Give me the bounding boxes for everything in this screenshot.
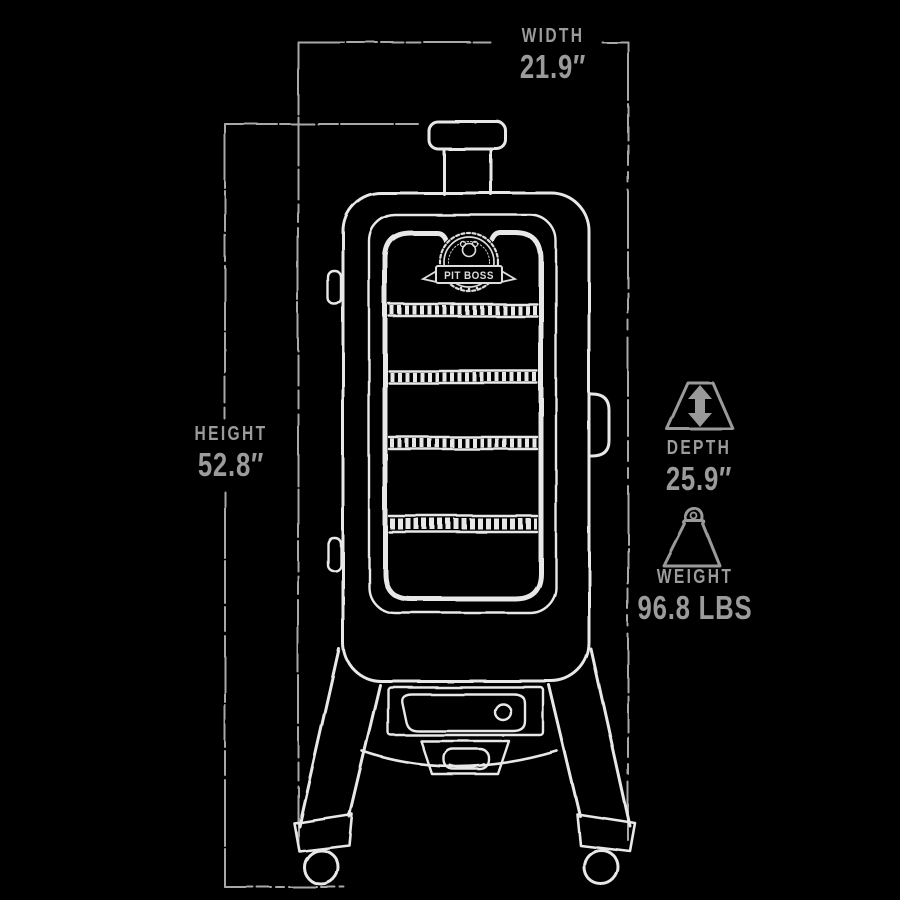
width-label: WIDTH (520, 26, 586, 46)
control-panel-face (402, 694, 525, 731)
logo-star (460, 287, 463, 290)
pit-boss-logo: PIT BOSS (423, 231, 515, 293)
caster-wheel-left (304, 850, 338, 884)
logo-text: PIT BOSS (444, 271, 494, 283)
leg-front-left (294, 649, 380, 884)
leg-front-right (549, 649, 635, 884)
door-handle (589, 394, 609, 456)
smoker-illustration: PIT BOSS (0, 0, 900, 900)
door-hinge-bottom (328, 538, 341, 571)
depth-value: 25.9″ (666, 462, 732, 497)
depth-arrows-icon (667, 383, 733, 429)
width-value: 21.9″ (520, 50, 586, 85)
chimney-cap (429, 122, 506, 149)
dimension-diagram: PIT BOSS WIDTH 21.9″ HEIGHT 52.8″ DEPTH (0, 0, 900, 900)
width-dimension: WIDTH 21.9″ (510, 26, 595, 85)
weight-dimension: WEIGHT 96.8 LBS (621, 567, 768, 626)
logo-star (468, 288, 471, 291)
leg-foot-bracket (294, 814, 352, 851)
weight-kettlebell-icon (664, 509, 720, 567)
height-value: 52.8″ (195, 448, 268, 483)
control-knob (495, 704, 511, 720)
logo-star (476, 287, 479, 290)
height-dimension: HEIGHT 52.8″ (184, 424, 278, 483)
leg-foot-bracket (577, 814, 635, 851)
height-label: HEIGHT (195, 424, 268, 444)
cooking-racks (389, 304, 537, 532)
door-hinge-top (328, 271, 341, 304)
depth-dimension: DEPTH 25.9″ (656, 438, 741, 497)
weight-value: 96.8 LBS (638, 591, 753, 626)
caster-wheel-right (584, 850, 618, 884)
depth-label: DEPTH (666, 438, 732, 458)
weight-label: WEIGHT (638, 567, 753, 587)
base-shell-curve (362, 751, 557, 767)
